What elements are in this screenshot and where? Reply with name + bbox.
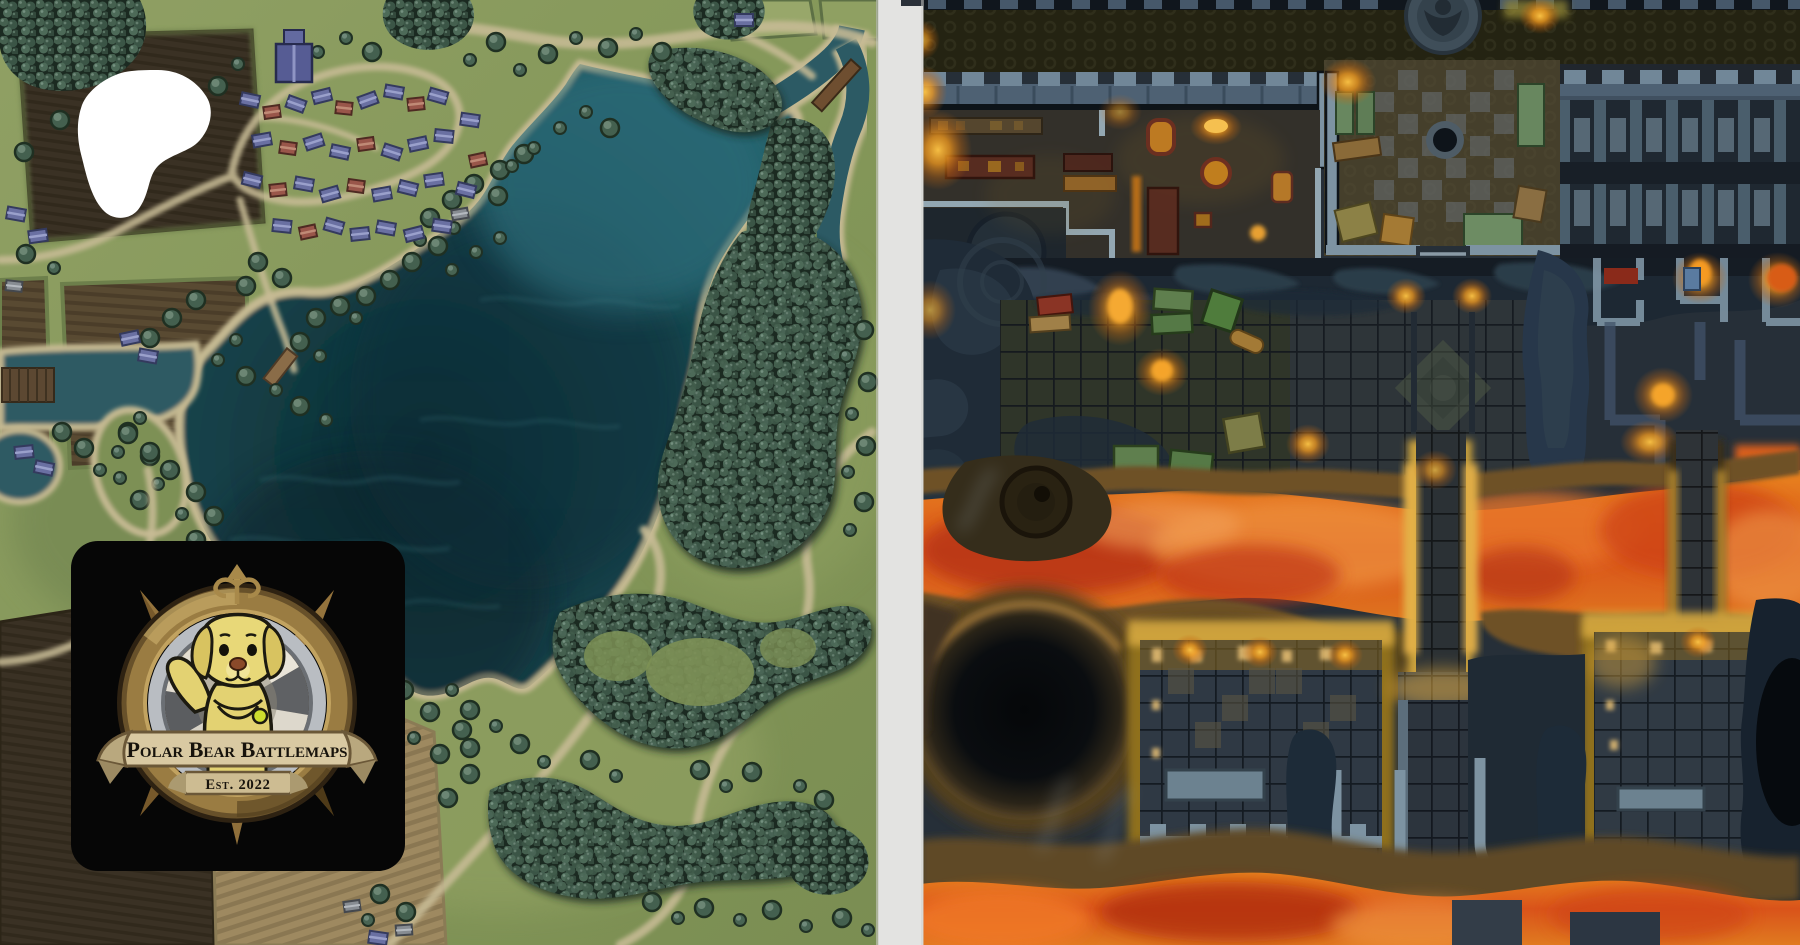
svg-text:Polar Bear Battlemaps: Polar Bear Battlemaps xyxy=(126,737,347,762)
svg-text:Est. 2022: Est. 2022 xyxy=(205,777,270,793)
